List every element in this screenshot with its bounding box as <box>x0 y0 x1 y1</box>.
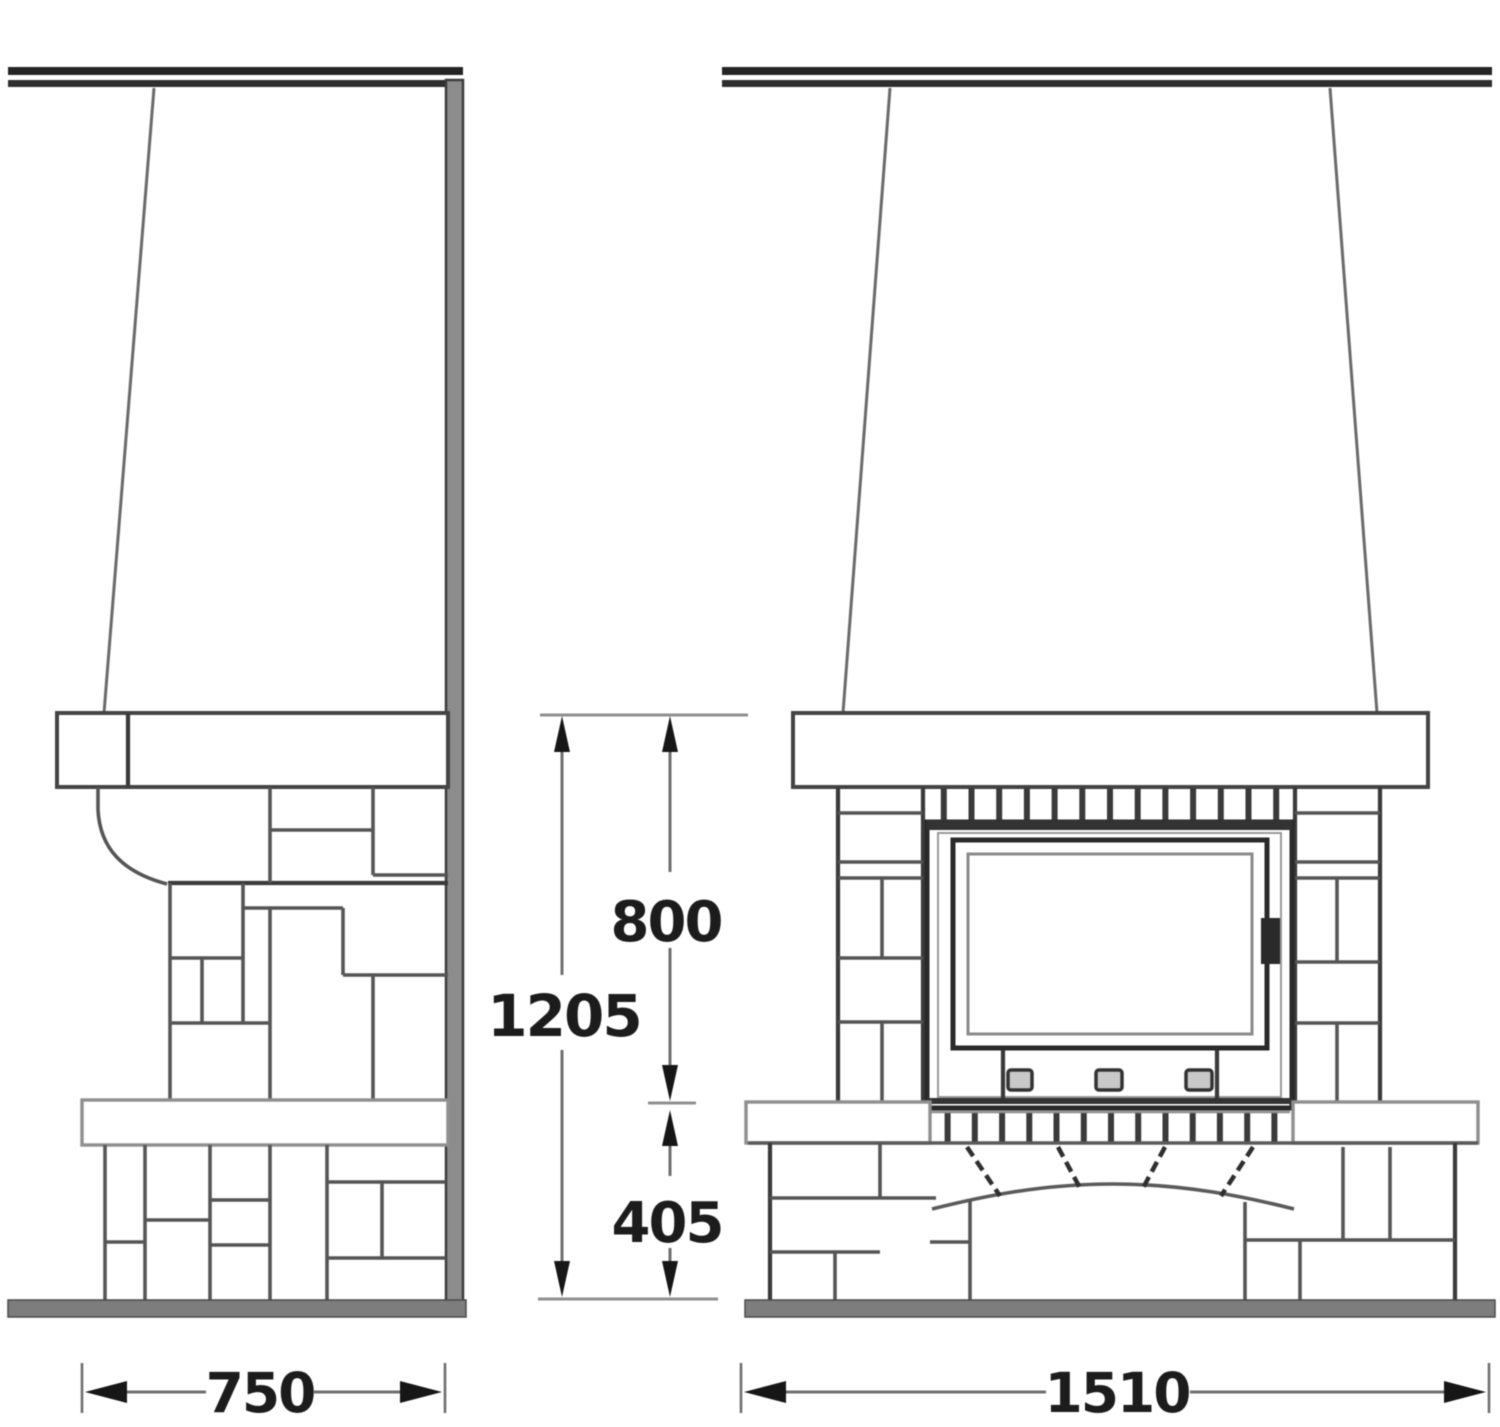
vent-slot <box>1008 1070 1032 1090</box>
dentil-slat <box>1081 1113 1087 1142</box>
stone-joints-upper <box>168 787 448 1100</box>
dentil-slat <box>1190 788 1196 824</box>
flue-line <box>104 88 154 713</box>
hearth-bench-left <box>746 1102 930 1143</box>
dimension-label-1510: 1510 <box>1044 1361 1189 1425</box>
dentil-slat <box>1162 788 1168 824</box>
hearth-bench <box>82 1100 448 1145</box>
dentil-slat <box>1024 788 1030 824</box>
drawing-canvas: 1205 800 405 750 <box>0 0 1500 1427</box>
dentil-slat <box>1246 788 1252 824</box>
dimension-label-750: 750 <box>206 1361 315 1425</box>
dentil-slat <box>1190 1113 1196 1142</box>
vent-slot <box>1096 1070 1122 1090</box>
ceiling-line <box>722 67 1492 87</box>
front-view <box>722 67 1495 1317</box>
dim-front-width: 1510 <box>741 1361 1489 1425</box>
dimension-label-1205: 1205 <box>487 982 640 1050</box>
dimension-label-405: 405 <box>612 1191 723 1256</box>
hearth-bench-right <box>1293 1102 1478 1143</box>
dentil-slat <box>1052 788 1058 824</box>
dentil-row-bottom <box>945 1113 1278 1142</box>
mantel-shelf <box>57 713 448 787</box>
vent-slot <box>1186 1070 1212 1090</box>
base-masonry <box>770 1143 1455 1300</box>
dentil-slat <box>972 1113 978 1142</box>
dentil-slat <box>1026 1113 1032 1142</box>
dentil-slat <box>1079 788 1085 824</box>
hood-right-line <box>1330 88 1377 713</box>
dentil-slat <box>1271 1113 1277 1142</box>
dim-side-width: 750 <box>82 1361 445 1425</box>
stove-top-band <box>927 820 1292 830</box>
base-masonry <box>105 1145 446 1300</box>
dentil-slat <box>1108 1113 1114 1142</box>
corbel-bracket <box>98 787 167 884</box>
dentil-slat <box>1218 788 1224 824</box>
stove-insert <box>927 820 1292 1108</box>
dentil-slat <box>1107 788 1113 824</box>
dentil-slat <box>1217 1113 1223 1142</box>
dentil-slat <box>1054 1113 1060 1142</box>
dentil-slat <box>1135 788 1141 824</box>
floor-line <box>8 1300 466 1317</box>
dentil-slat <box>1273 788 1279 824</box>
dentil-slat <box>996 788 1002 824</box>
voussoir-joints <box>967 1147 1253 1196</box>
floor-line <box>745 1300 1495 1317</box>
door-glass <box>968 854 1252 1034</box>
dentil-slat <box>1163 1113 1169 1142</box>
left-column <box>838 787 923 1102</box>
dentil-slat <box>969 788 975 824</box>
mantel-shelf <box>793 713 1428 787</box>
ceiling-line <box>8 67 463 87</box>
dentil-slat <box>945 1113 951 1142</box>
dimension-label-800: 800 <box>611 890 722 955</box>
dentil-slat <box>941 788 947 824</box>
dentil-slat <box>1244 1113 1250 1142</box>
door-handle <box>1261 918 1280 964</box>
dentil-slat <box>999 1113 1005 1142</box>
side-view <box>8 67 466 1317</box>
dim-bench-height: 405 <box>612 1110 723 1297</box>
arch-opening <box>932 1147 1294 1209</box>
dentil-slat <box>1135 1113 1141 1142</box>
dentil-row-top <box>941 788 1279 824</box>
right-column <box>1295 787 1380 1102</box>
hood-left-line <box>843 88 890 713</box>
